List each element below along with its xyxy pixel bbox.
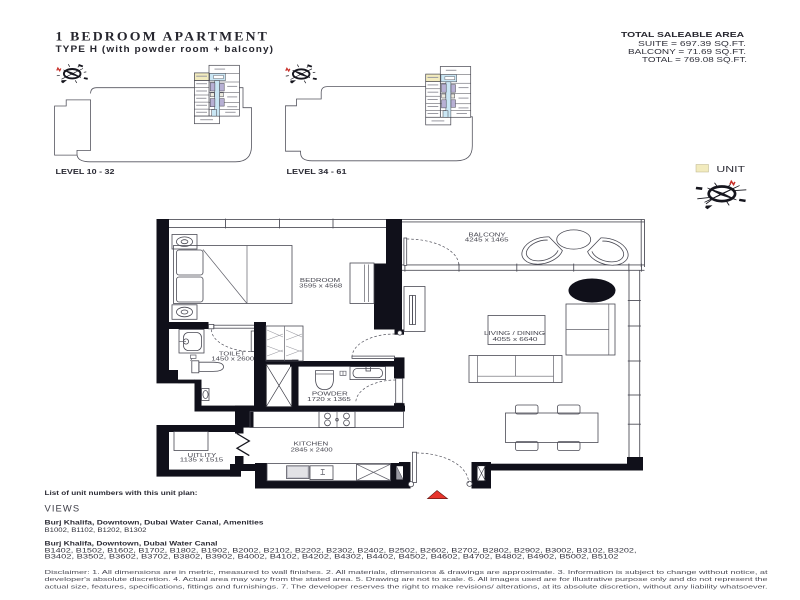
svg-text:actual size, features, specifi: actual size, features, specifications, f… bbox=[45, 585, 769, 591]
svg-text:TYPE H (with powder room + bal: TYPE H (with powder room + balcony) bbox=[56, 44, 275, 55]
svg-text:VIEWS: VIEWS bbox=[45, 503, 81, 514]
svg-text:LEVEL 34 - 61: LEVEL 34 - 61 bbox=[287, 167, 347, 176]
svg-text:developer's absolute discretio: developer's absolute discretion. 4. Actu… bbox=[45, 577, 768, 583]
svg-text:1450 x 2600: 1450 x 2600 bbox=[211, 357, 254, 363]
svg-text:Burj Khalifa, Downtown, Dubai: Burj Khalifa, Downtown, Dubai Water Cana… bbox=[45, 520, 265, 527]
svg-text:SUITE = 697.39 SQ.FT.: SUITE = 697.39 SQ.FT. bbox=[638, 40, 746, 48]
svg-text:2845 x 2400: 2845 x 2400 bbox=[291, 447, 333, 453]
svg-text:1135 x 1515: 1135 x 1515 bbox=[180, 458, 224, 464]
svg-text:4245 x 1465: 4245 x 1465 bbox=[465, 237, 509, 243]
svg-text:UNIT: UNIT bbox=[716, 164, 746, 174]
svg-text:1720 x 1365: 1720 x 1365 bbox=[307, 397, 351, 403]
svg-text:TOTAL SALEABLE AREA: TOTAL SALEABLE AREA bbox=[621, 30, 745, 39]
svg-text:B1002, B1102, B1202, B1302: B1002, B1102, B1202, B1302 bbox=[45, 527, 148, 534]
svg-text:List of unit numbers with this: List of unit numbers with this unit plan… bbox=[45, 490, 198, 497]
svg-text:BALCONY = 71.69 SQ.FT.: BALCONY = 71.69 SQ.FT. bbox=[628, 48, 746, 56]
svg-text:B3402, B3502, B3602, B3702, B3: B3402, B3502, B3602, B3702, B3802, B3902… bbox=[45, 554, 620, 561]
svg-text:1 BEDROOM APARTMENT: 1 BEDROOM APARTMENT bbox=[56, 29, 270, 44]
svg-text:TOTAL = 769.08 SQ.FT.: TOTAL = 769.08 SQ.FT. bbox=[642, 56, 747, 64]
svg-text:4055 x 6640: 4055 x 6640 bbox=[493, 337, 538, 343]
svg-text:3595 x 4568: 3595 x 4568 bbox=[299, 283, 342, 289]
svg-text:LEVEL 10 - 32: LEVEL 10 - 32 bbox=[56, 167, 115, 176]
svg-text:Disclaimer: 1. All dimensions: Disclaimer: 1. All dimensions are in met… bbox=[45, 570, 769, 576]
